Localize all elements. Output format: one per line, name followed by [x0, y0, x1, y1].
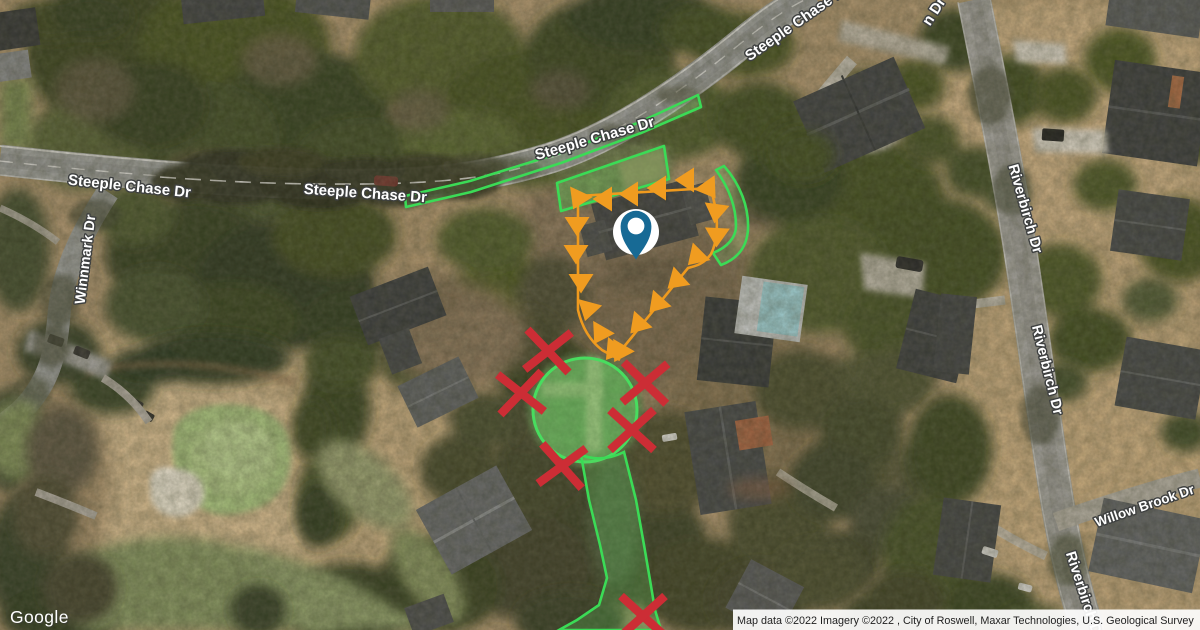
svg-text:Map data ©2022 Imagery ©2022 ,: Map data ©2022 Imagery ©2022 , City of R…: [737, 615, 1194, 627]
svg-text:Google: Google: [10, 607, 69, 627]
